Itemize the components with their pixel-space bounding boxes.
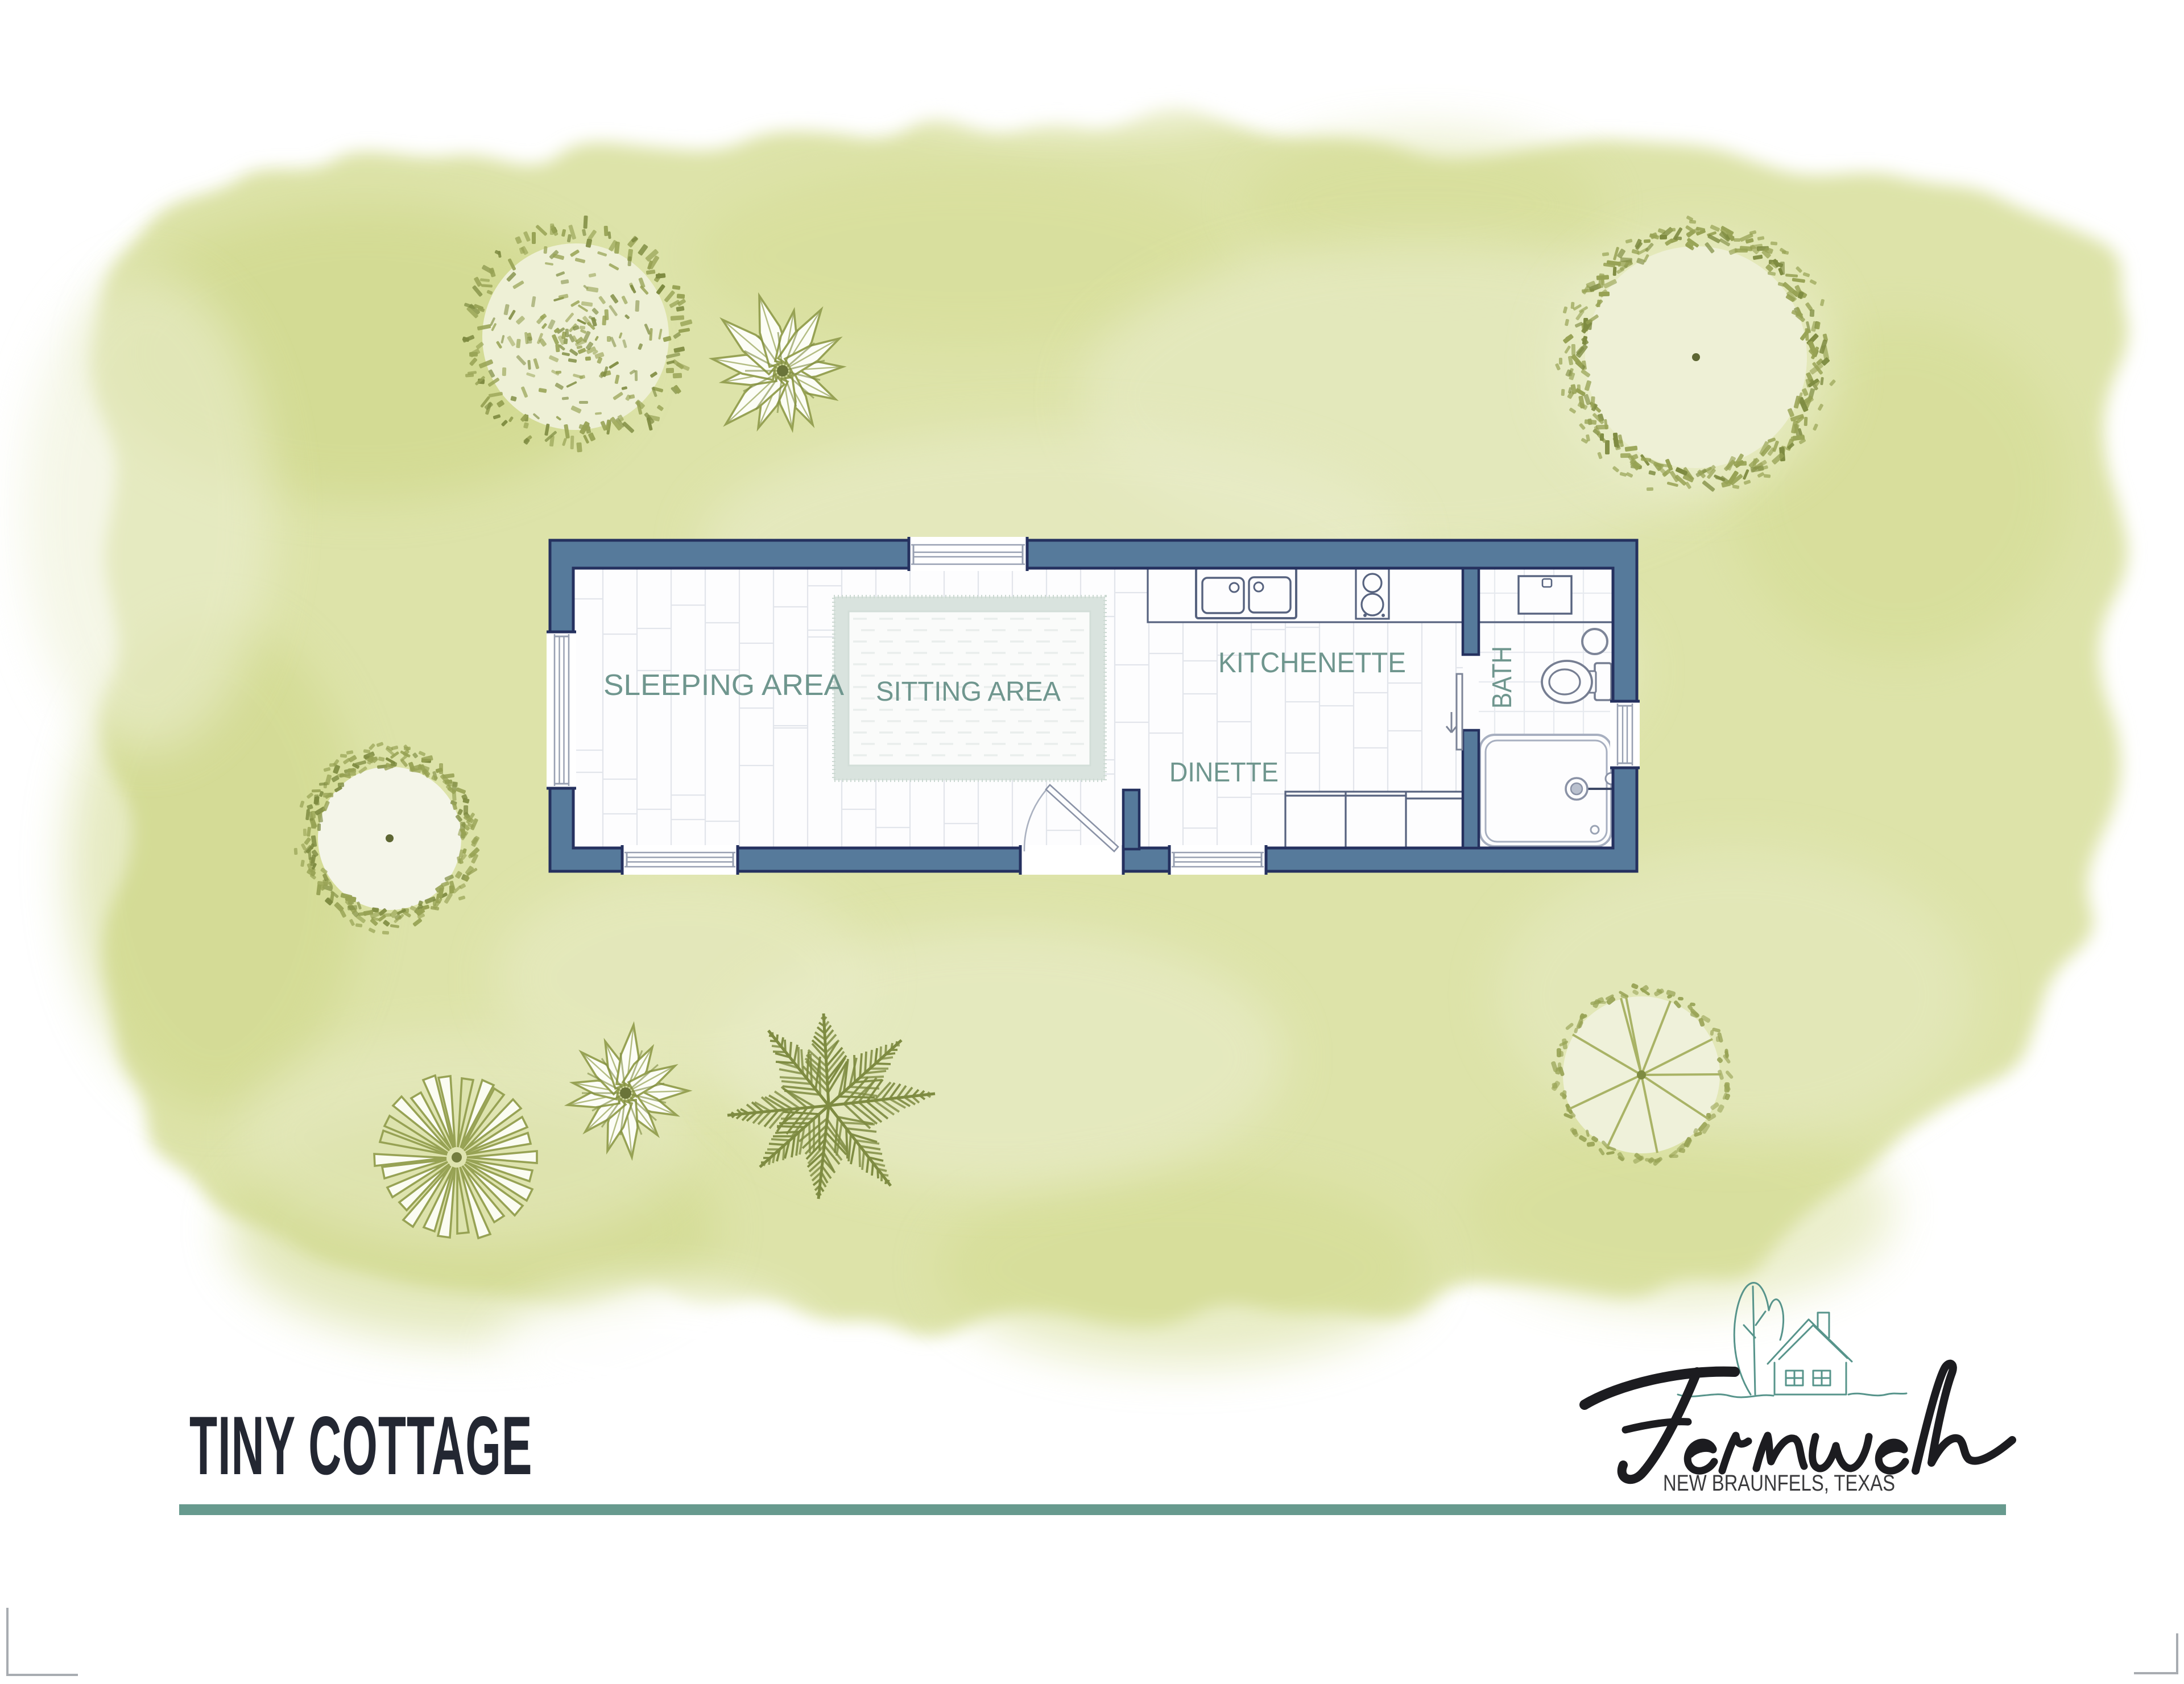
svg-text:SLEEPING AREA: SLEEPING AREA [603,669,844,702]
svg-text:TINY COTTAGE: TINY COTTAGE [189,1398,533,1492]
svg-text:DINETTE: DINETTE [1169,758,1279,788]
svg-text:KITCHENETTE: KITCHENETTE [1218,647,1406,678]
svg-text:BATH: BATH [1487,646,1517,709]
svg-text:NEW BRAUNFELS, TEXAS: NEW BRAUNFELS, TEXAS [1663,1471,1895,1496]
svg-text:SITTING AREA: SITTING AREA [876,677,1061,707]
